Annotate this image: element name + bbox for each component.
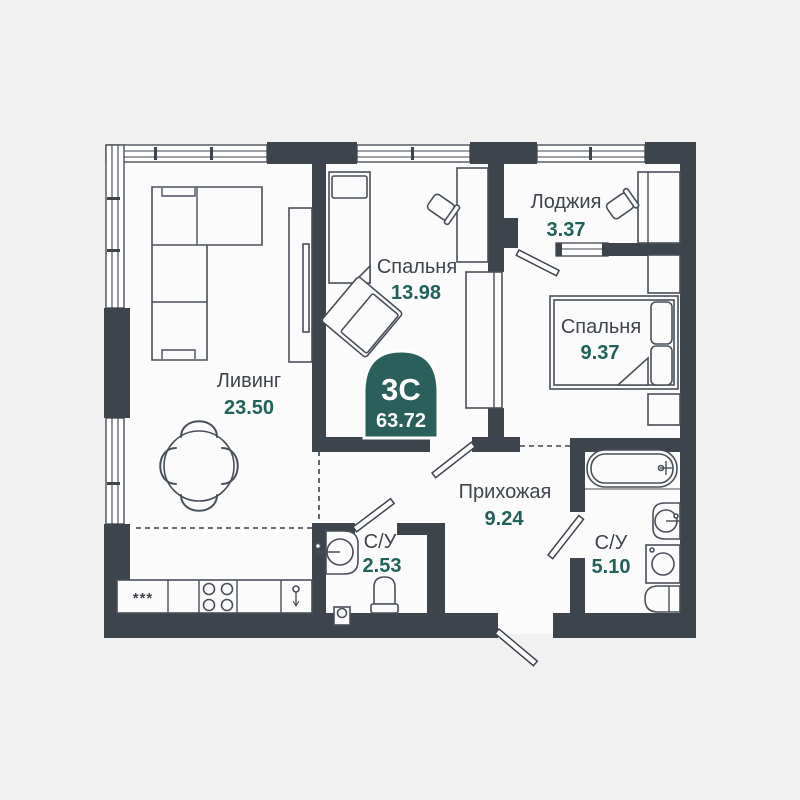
toilet — [371, 577, 398, 613]
badge-total-area: 63.72 — [376, 410, 426, 432]
room-label-loggia: Лоджия — [531, 191, 602, 213]
room-area-hallway: 9.24 — [485, 508, 525, 530]
room-area-loggia: 3.37 — [547, 219, 586, 241]
wall — [104, 613, 498, 638]
nightstand — [648, 394, 680, 425]
desk — [457, 168, 488, 262]
room-area-bath2: 5.10 — [592, 556, 631, 578]
tv-stand — [289, 208, 312, 362]
bathtub — [587, 450, 677, 487]
wall — [570, 558, 585, 615]
room-label-bedroom2: Спальня — [561, 316, 641, 338]
tv — [303, 244, 309, 332]
wall — [312, 523, 326, 613]
floorplan-image: *** Ливинг 23.50 — [0, 0, 800, 800]
fridge-marks: *** — [133, 590, 154, 607]
faucet-icon — [674, 514, 678, 518]
wardrobe — [466, 272, 502, 408]
pillow — [651, 302, 672, 344]
apartment-badge: 3С 63.72 — [364, 351, 438, 438]
room-area-living: 23.50 — [224, 397, 274, 419]
apartment-floorplan: *** Ливинг 23.50 — [0, 0, 800, 800]
bathroom-sink — [653, 503, 681, 539]
room-area-bedroom2: 9.37 — [581, 342, 620, 364]
wall — [470, 142, 537, 164]
window-top-loggia — [537, 145, 645, 162]
room-area-bedroom1: 13.98 — [391, 282, 441, 304]
room-label-bath2: С/У — [595, 532, 628, 554]
wall-living-bedroom — [312, 164, 326, 442]
entrance-door-leaf — [495, 629, 537, 666]
badge-rooms-label: 3С — [381, 372, 421, 407]
window-top-bedroom1 — [357, 145, 470, 162]
wall — [570, 438, 585, 512]
pillow — [332, 176, 367, 198]
toilet — [645, 586, 680, 612]
room-label-bath1: С/У — [364, 531, 397, 553]
wall-bedroom1-loggia — [488, 164, 504, 272]
pillow — [651, 346, 672, 385]
window-left-lower — [106, 418, 124, 524]
window-left-upper — [106, 145, 124, 308]
bed — [329, 172, 370, 283]
window-loggia-inner — [556, 243, 608, 256]
room-area-bath1: 2.53 — [363, 555, 402, 577]
wall — [104, 308, 130, 418]
window-top-living — [106, 145, 267, 162]
faucet-icon — [316, 544, 321, 549]
room-label-bedroom1: Спальня — [377, 256, 457, 278]
washing-machine — [646, 545, 680, 583]
wall — [488, 408, 504, 452]
room-label-living: Ливинг — [217, 370, 281, 392]
wall — [680, 142, 696, 638]
wall — [553, 613, 696, 638]
kitchen-counter: *** — [117, 580, 312, 613]
wall-loggia-bedroom2 — [608, 243, 680, 256]
room-label-hallway: Прихожая — [459, 481, 552, 503]
wall — [427, 523, 445, 615]
wall — [267, 142, 357, 164]
wall — [504, 218, 518, 248]
floor-drain — [334, 607, 350, 625]
loggia-desk — [638, 172, 680, 243]
nightstand — [648, 255, 680, 293]
